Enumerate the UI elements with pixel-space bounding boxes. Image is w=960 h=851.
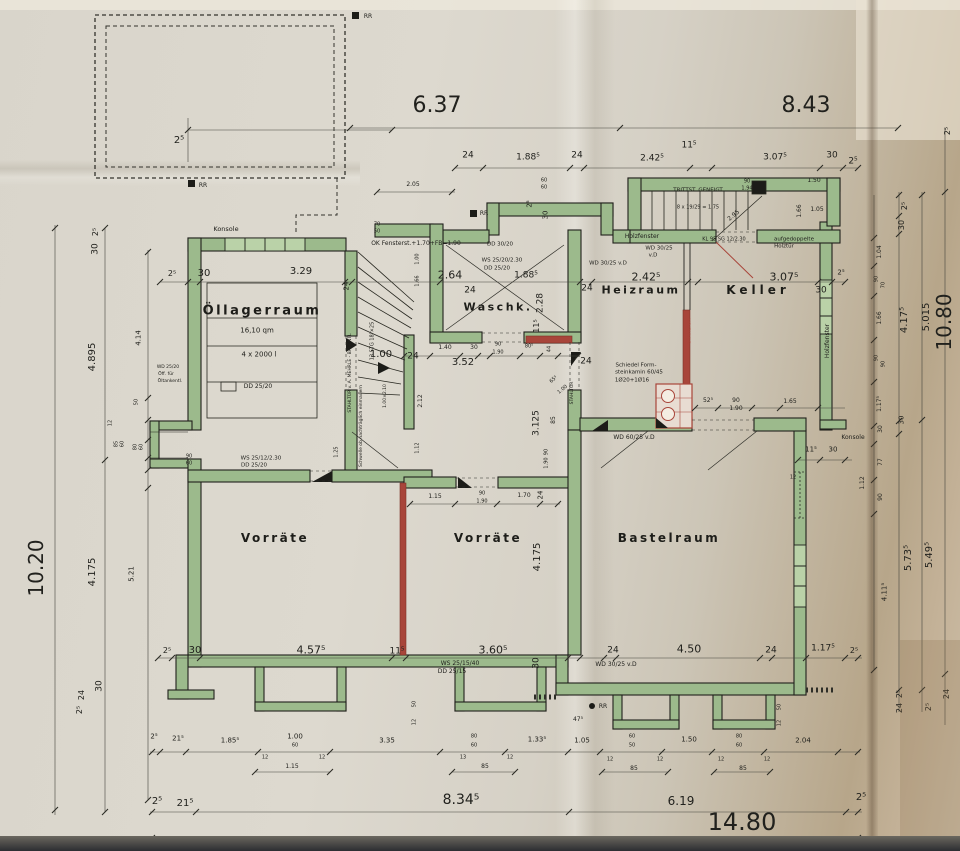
dim-label: 3.125 bbox=[533, 410, 542, 436]
dim-label: 4 x 2000 l bbox=[241, 352, 276, 359]
dim-label: 6.19 bbox=[668, 795, 695, 807]
dim-label: 12 bbox=[790, 476, 796, 481]
dim-label: 2⁵ bbox=[850, 647, 858, 655]
dim-label: 30 bbox=[533, 657, 542, 668]
dim-label: 12 bbox=[109, 420, 114, 426]
dim-label: 2⁵ bbox=[174, 136, 184, 146]
dim-label: 2⁵ bbox=[901, 202, 909, 210]
dim-label: WD 60/25 v.D bbox=[613, 435, 654, 441]
dim-label: WS 25/12/2.30 bbox=[241, 456, 282, 462]
dim-label: KL 95 SG 12/2.30 bbox=[702, 238, 745, 243]
dim-label: 60 bbox=[140, 444, 145, 450]
dim-label: 8.34⁵ bbox=[443, 793, 480, 807]
dim-label: 3.35 bbox=[379, 738, 395, 745]
dim-label: 11⁵ bbox=[681, 142, 696, 151]
dim-label: 1.50 bbox=[681, 737, 697, 744]
dim-label: 24 bbox=[765, 647, 776, 656]
dim-label: 2.42⁵ bbox=[640, 155, 664, 164]
dim-label: Schwelle ob nachträglich einmauern bbox=[360, 385, 365, 467]
dim-label: 50 bbox=[374, 230, 380, 235]
dim-label: 3.07⁵ bbox=[770, 272, 799, 283]
dim-label: 2⁵ bbox=[152, 797, 162, 807]
dim-label: 2⁵ bbox=[856, 793, 866, 803]
dim-label: RR bbox=[599, 704, 607, 710]
dim-label: 80⁵ bbox=[525, 345, 533, 350]
dim-label: 60 bbox=[736, 744, 742, 749]
dim-label: 2.95 bbox=[727, 209, 741, 222]
dim-label: 4.175 bbox=[533, 543, 543, 572]
dim-label: 30 bbox=[826, 152, 837, 161]
dim-label: 11⁵ bbox=[805, 447, 817, 454]
dim-label: 90 bbox=[186, 455, 192, 460]
dim-label: 8.43 bbox=[782, 95, 831, 117]
dim-label: Holzfenster bbox=[625, 234, 659, 240]
dim-label: 60 bbox=[121, 441, 126, 447]
dim-label: Holztür bbox=[774, 244, 794, 250]
dim-label: 65⁵ bbox=[549, 375, 559, 384]
dim-label: 50 bbox=[135, 399, 140, 405]
dim-label: 21⁵ bbox=[177, 799, 194, 809]
dim-label: 2⁵ bbox=[944, 127, 952, 135]
dim-label: 30 bbox=[96, 680, 105, 691]
dim-label: 30 bbox=[898, 220, 906, 230]
dim-label: 2.42⁵ bbox=[632, 272, 661, 283]
dim-label: 52⁵ bbox=[703, 398, 713, 404]
dim-label: 24 bbox=[462, 152, 473, 161]
dim-label: TRITTST. GENEIGT bbox=[673, 188, 723, 194]
dim-label: 1.17⁵ bbox=[877, 396, 883, 412]
dim-label: 30 bbox=[829, 447, 838, 454]
dim-label: 2.05 bbox=[406, 182, 419, 188]
dim-label: OK Fensterst.+1.70+FB=1.90 bbox=[371, 241, 461, 247]
dim-label: 60 bbox=[292, 744, 298, 749]
dim-label: 4.895 bbox=[88, 343, 98, 372]
dim-label: 2⁵ bbox=[925, 703, 933, 711]
dim-label: 4.11⁵ bbox=[882, 583, 889, 601]
dim-label: 2⁵ bbox=[76, 706, 84, 714]
dim-label: 50 bbox=[629, 744, 635, 749]
dim-label: STAHLTÜR v. A. MEHRLE - BAUENTL bbox=[349, 333, 354, 412]
dim-label: DD 30/20 bbox=[487, 242, 513, 248]
dim-label: 5.49⁵ bbox=[925, 542, 935, 568]
dim-label: 1.00 bbox=[416, 253, 421, 264]
dim-label: 24 bbox=[571, 152, 582, 161]
dim-label: 60 bbox=[541, 186, 547, 191]
dim-label: 70 bbox=[882, 282, 887, 288]
dim-label: 30 bbox=[198, 269, 211, 279]
dim-label: 3.52 bbox=[452, 358, 474, 368]
dim-label: 1.90 bbox=[476, 500, 487, 505]
dim-label: 1.65 bbox=[783, 399, 796, 405]
dim-label: 10.80 bbox=[934, 293, 954, 350]
dim-label: 10.20 bbox=[26, 539, 46, 596]
dim-label: 1.00 bbox=[557, 385, 569, 396]
dim-label: 13 bbox=[460, 756, 466, 761]
dim-label: 1.50 bbox=[807, 178, 820, 184]
dim-label: 2.64 bbox=[438, 270, 463, 281]
dim-label: 90 bbox=[878, 493, 884, 501]
dim-label: 11⁵ bbox=[389, 648, 404, 657]
dim-label: 1.90 bbox=[729, 406, 742, 412]
dim-label: 2⁵ bbox=[527, 200, 534, 207]
dim-label: 1.88⁵ bbox=[514, 272, 538, 281]
dim-label: 12 bbox=[262, 756, 268, 761]
dim-label: Öltankentl. bbox=[158, 380, 183, 385]
dim-label: 1.15 bbox=[428, 494, 441, 500]
dim-label: 13 STG 18⁵×25 bbox=[371, 322, 376, 361]
dim-label: 47⁵ bbox=[573, 717, 583, 723]
dim-label: 30 bbox=[899, 416, 906, 425]
dim-label: 24 bbox=[464, 287, 475, 296]
dim-label: 3.60⁵ bbox=[479, 645, 508, 656]
dim-label: 12 bbox=[718, 758, 724, 763]
dim-label: 1.90 bbox=[492, 351, 503, 356]
dim-label: 1.00×2.10 bbox=[384, 384, 389, 408]
dim-label: STAHLTÜR bbox=[688, 318, 693, 343]
dim-label: STAHLTÜR bbox=[571, 382, 576, 405]
dim-label: 1.66 bbox=[877, 311, 883, 324]
dim-label: 2⁵ bbox=[837, 270, 844, 277]
dim-label: 24 bbox=[943, 689, 951, 699]
dim-label: 24 bbox=[607, 647, 618, 656]
dim-label: 2⁵ bbox=[896, 690, 904, 698]
dim-label: WS 25/15/40 bbox=[441, 661, 480, 667]
dim-label: 24 bbox=[580, 358, 591, 367]
dim-label: 1.05 bbox=[574, 738, 590, 745]
dim-label: 85 bbox=[630, 766, 638, 772]
dim-label: 14.80 bbox=[708, 810, 777, 834]
dim-label: 50 bbox=[778, 704, 783, 710]
dim-label: 2⁵ bbox=[92, 228, 100, 236]
dim-label: 4.17⁵ bbox=[900, 307, 910, 333]
dim-label: WD 30/25 v.D bbox=[589, 261, 627, 267]
dim-label: 1.33⁵ bbox=[528, 737, 546, 744]
dim-label: DD 25/15 bbox=[438, 669, 466, 675]
dim-label: 1.70 bbox=[517, 493, 530, 499]
dim-label: 24 bbox=[581, 285, 592, 294]
dim-label: 60 bbox=[629, 735, 635, 740]
dim-label: 24 bbox=[78, 690, 86, 700]
dim-label: 5.73⁵ bbox=[904, 545, 914, 571]
dim-label: 4.14 bbox=[136, 330, 143, 346]
dim-label: 80 bbox=[736, 735, 742, 740]
dim-label: 90 bbox=[744, 180, 750, 185]
dim-label: 30 bbox=[878, 425, 884, 433]
dim-label: WD 30/25 bbox=[645, 246, 672, 252]
dim-label: Holzfenster bbox=[825, 324, 831, 358]
dim-label: 5.21 bbox=[129, 566, 136, 582]
dim-label: 2.04 bbox=[795, 738, 811, 745]
dim-label: 30 bbox=[815, 287, 826, 296]
dim-label: 1.85⁵ bbox=[221, 738, 239, 745]
dim-label: 85 bbox=[551, 416, 557, 424]
dim-label: 1.04 bbox=[877, 245, 883, 258]
dim-label: 12 bbox=[764, 758, 770, 763]
dim-label: 85 bbox=[481, 764, 489, 770]
dim-label: 8 x 19/29 = 1.75 bbox=[677, 206, 719, 211]
dim-label: 4.50 bbox=[677, 644, 702, 655]
dim-label: 50 bbox=[413, 701, 418, 707]
dim-label: RR bbox=[199, 183, 207, 189]
dim-label: Konsole bbox=[841, 435, 864, 441]
dim-label: 12 bbox=[413, 719, 418, 725]
dim-label: 30 bbox=[92, 243, 101, 254]
dim-label: WD 25/20 bbox=[157, 366, 179, 371]
dim-label: 77 bbox=[878, 458, 884, 466]
dim-label: 24 bbox=[407, 353, 418, 362]
dim-label: 60 bbox=[541, 179, 547, 184]
dim-label: 90 bbox=[545, 449, 550, 455]
dim-label: 90 bbox=[479, 492, 485, 497]
dim-label: 1.90 bbox=[545, 457, 550, 468]
dim-label: 2.28 bbox=[537, 293, 546, 313]
dim-label: Konsole bbox=[213, 226, 238, 233]
dim-label: 21⁵ bbox=[172, 736, 184, 743]
dim-label: 12 bbox=[507, 756, 513, 761]
dim-label: RR bbox=[480, 211, 488, 217]
dim-label: 1.17⁵ bbox=[811, 645, 835, 654]
dim-label: RR bbox=[364, 14, 372, 20]
scanned-floor-plan: Öllagerraum Waschk. Heizraum Keller Vorr… bbox=[0, 0, 960, 851]
dim-label: steinkamin 60/45 bbox=[615, 370, 663, 376]
dim-label: 11⁵ bbox=[533, 319, 541, 332]
dimension-labels-layer: 6.378.432⁵241.88⁵242.42⁵11⁵3.07⁵302⁵2.05… bbox=[0, 0, 960, 851]
dim-label: 2⁵ bbox=[163, 647, 171, 655]
dim-label: Öff. für bbox=[158, 373, 174, 378]
dim-label: 12 bbox=[657, 758, 663, 763]
dim-label: 1.66 bbox=[797, 204, 803, 217]
dim-label: 85 bbox=[739, 766, 747, 772]
dim-label: 24 bbox=[538, 491, 545, 500]
dim-label: 4.57⁵ bbox=[297, 645, 326, 656]
dim-label: 3.07⁵ bbox=[763, 154, 787, 163]
dim-label: 1.40 bbox=[438, 345, 451, 351]
dim-label: 24 bbox=[344, 282, 351, 291]
dim-label: 1.88⁵ bbox=[516, 154, 540, 163]
dim-label: 1.05 bbox=[810, 207, 823, 213]
dim-label: aufgedoppelte bbox=[774, 237, 814, 243]
dim-label: 80 bbox=[471, 735, 477, 740]
dim-label: 1.94 bbox=[741, 187, 752, 192]
dim-label: 2⁵ bbox=[150, 734, 157, 741]
dim-label: 6.37 bbox=[413, 95, 462, 117]
dim-label: 1.15 bbox=[285, 764, 298, 770]
dim-label: 12 bbox=[319, 756, 325, 761]
dim-label: WS 25/20/2.30 bbox=[482, 258, 523, 264]
dim-label: 90 bbox=[875, 276, 880, 282]
dim-label: 2⁵ bbox=[168, 270, 176, 278]
dim-label: 12 bbox=[607, 758, 613, 763]
dim-label: v.D bbox=[649, 253, 658, 259]
dim-label: 90 bbox=[882, 361, 887, 367]
dim-label: 24 bbox=[896, 703, 904, 713]
dim-label: 1Ø20+1Ø16 bbox=[615, 378, 649, 384]
dim-label: 1.66 bbox=[416, 275, 421, 286]
dim-label: 90 bbox=[732, 398, 740, 404]
dim-label: 60 bbox=[186, 462, 192, 467]
dim-label: DD 25/20 bbox=[244, 384, 272, 390]
dim-label: 3.29 bbox=[290, 267, 312, 277]
dim-label: 16,10 qm bbox=[240, 328, 274, 335]
dim-label: 1.00 bbox=[287, 734, 303, 741]
dim-label: 1.12 bbox=[416, 442, 421, 453]
dim-label: 2.12 bbox=[418, 394, 424, 407]
dim-label: 60 bbox=[471, 744, 477, 749]
dim-label: 90 bbox=[875, 355, 880, 361]
dim-label: 2⁵ bbox=[848, 158, 857, 167]
dim-label: 30 bbox=[470, 345, 478, 351]
dim-label: Schiedel Form- bbox=[616, 363, 657, 369]
dim-label: 5.015 bbox=[922, 303, 932, 332]
dim-label: 1.25 bbox=[335, 446, 340, 457]
dim-label: WD 30/25 v.D bbox=[595, 662, 636, 668]
dim-label: 12 bbox=[778, 720, 783, 726]
dim-label: 70 bbox=[374, 223, 380, 228]
dim-label: 30 bbox=[189, 646, 202, 656]
dim-label: 4.175 bbox=[88, 558, 98, 587]
dim-label: 30 bbox=[543, 211, 550, 220]
dim-label: 44 bbox=[548, 346, 553, 352]
dim-label: 90 bbox=[495, 343, 501, 348]
dim-label: DD 25/20 bbox=[484, 266, 510, 272]
dim-label: DD 25/20 bbox=[241, 463, 267, 469]
dim-label: 1.12 bbox=[860, 476, 866, 489]
